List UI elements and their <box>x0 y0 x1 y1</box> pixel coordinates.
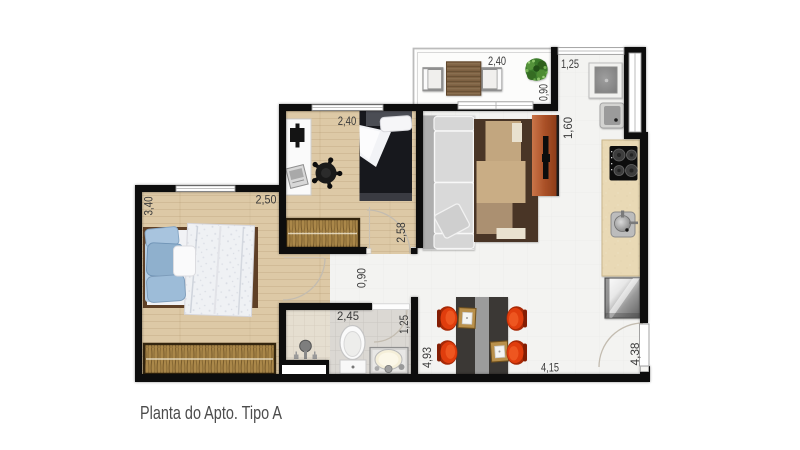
svg-text:2,58: 2,58 <box>396 222 408 243</box>
svg-text:2,45: 2,45 <box>337 311 359 323</box>
svg-text:2,40: 2,40 <box>488 56 506 68</box>
svg-text:1,25: 1,25 <box>399 315 411 334</box>
svg-text:4,15: 4,15 <box>541 363 559 375</box>
svg-text:1,60: 1,60 <box>563 117 575 139</box>
svg-text:2,40: 2,40 <box>338 116 357 128</box>
svg-text:4,38: 4,38 <box>630 343 642 366</box>
svg-text:2,50: 2,50 <box>256 195 277 207</box>
svg-text:0,90: 0,90 <box>357 268 369 288</box>
svg-text:4,93: 4,93 <box>422 347 434 368</box>
svg-text:3,40: 3,40 <box>144 197 156 216</box>
svg-text:1,25: 1,25 <box>561 59 579 71</box>
svg-text:0,90: 0,90 <box>539 84 551 101</box>
svg-text:Planta do Apto. Tipo A: Planta do Apto. Tipo A <box>140 403 282 423</box>
